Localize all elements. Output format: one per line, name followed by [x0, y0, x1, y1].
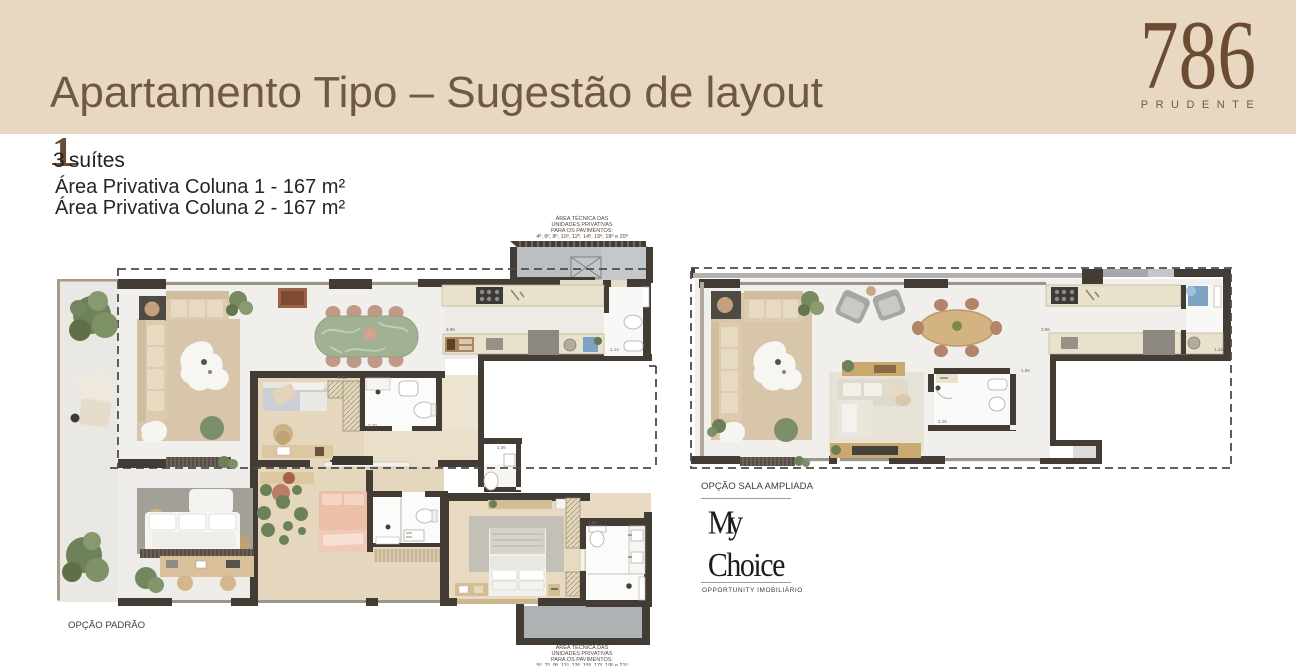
svg-text:1.06: 1.06 [1021, 368, 1030, 373]
svg-text:1.65: 1.65 [588, 520, 597, 525]
svg-text:2.10: 2.10 [368, 423, 377, 428]
svg-text:2.10: 2.10 [938, 419, 947, 424]
svg-text:1.14: 1.14 [610, 347, 619, 352]
svg-text:1.14: 1.14 [1214, 347, 1223, 352]
svg-text:3.96: 3.96 [446, 327, 455, 332]
svg-text:3.96: 3.96 [1041, 327, 1050, 332]
svg-text:5.11: 5.11 [338, 375, 347, 380]
svg-text:1.06: 1.06 [497, 445, 506, 450]
